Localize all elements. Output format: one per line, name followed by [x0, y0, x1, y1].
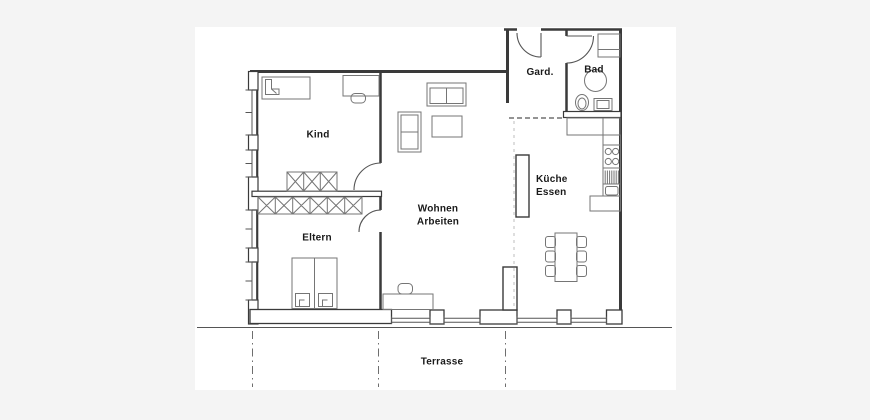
room-label-kind: Kind [306, 130, 329, 141]
room-label-eltern: Eltern [302, 233, 332, 244]
floor-plan: Kind Eltern Wohnen Arbeiten Küche Essen … [0, 0, 870, 420]
room-label-essen: Essen [536, 187, 566, 198]
room-label-wohnen: Wohnen [418, 204, 458, 215]
room-label-bad: Bad [584, 65, 604, 76]
room-label-terrasse: Terrasse [421, 357, 464, 368]
room-label-arbeiten: Arbeiten [417, 217, 459, 228]
room-label-garderobe: Gard. [526, 67, 553, 78]
floorplan-page: Kind Eltern Wohnen Arbeiten Küche Essen … [0, 0, 870, 420]
room-label-kueche: Küche [536, 174, 568, 185]
